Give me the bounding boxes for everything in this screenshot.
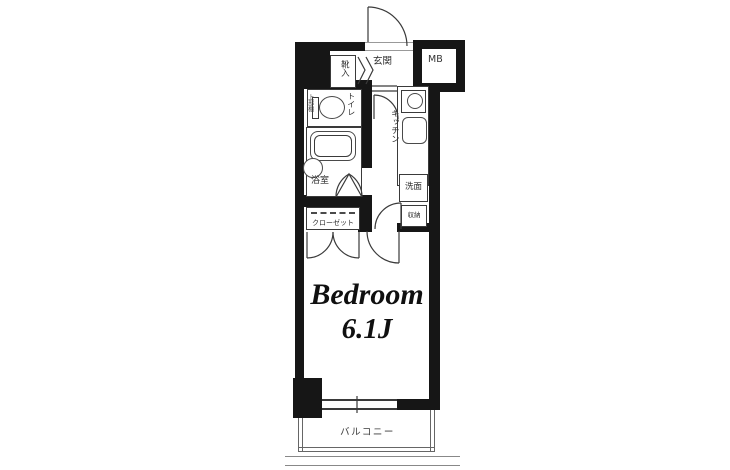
closet-door-right-arc xyxy=(333,232,359,258)
entrance-door-arc xyxy=(368,7,407,46)
bath-folding-door-icon xyxy=(336,174,362,197)
shoe-cabinet-bifold-icon xyxy=(358,57,365,84)
bedroom-door-arc xyxy=(367,231,399,263)
toilet-door-arc xyxy=(374,95,398,119)
door-symbols xyxy=(0,0,730,470)
shoe-cabinet-bifold-icon-2 xyxy=(366,57,373,84)
closet-door-left-arc xyxy=(307,232,333,258)
washroom-door-arc xyxy=(375,203,401,229)
floor-plan: MB 靴入 上部棚 トイレ 浴室 キッチン 洗面 収納 クローゼット 玄関 Be… xyxy=(0,0,730,470)
